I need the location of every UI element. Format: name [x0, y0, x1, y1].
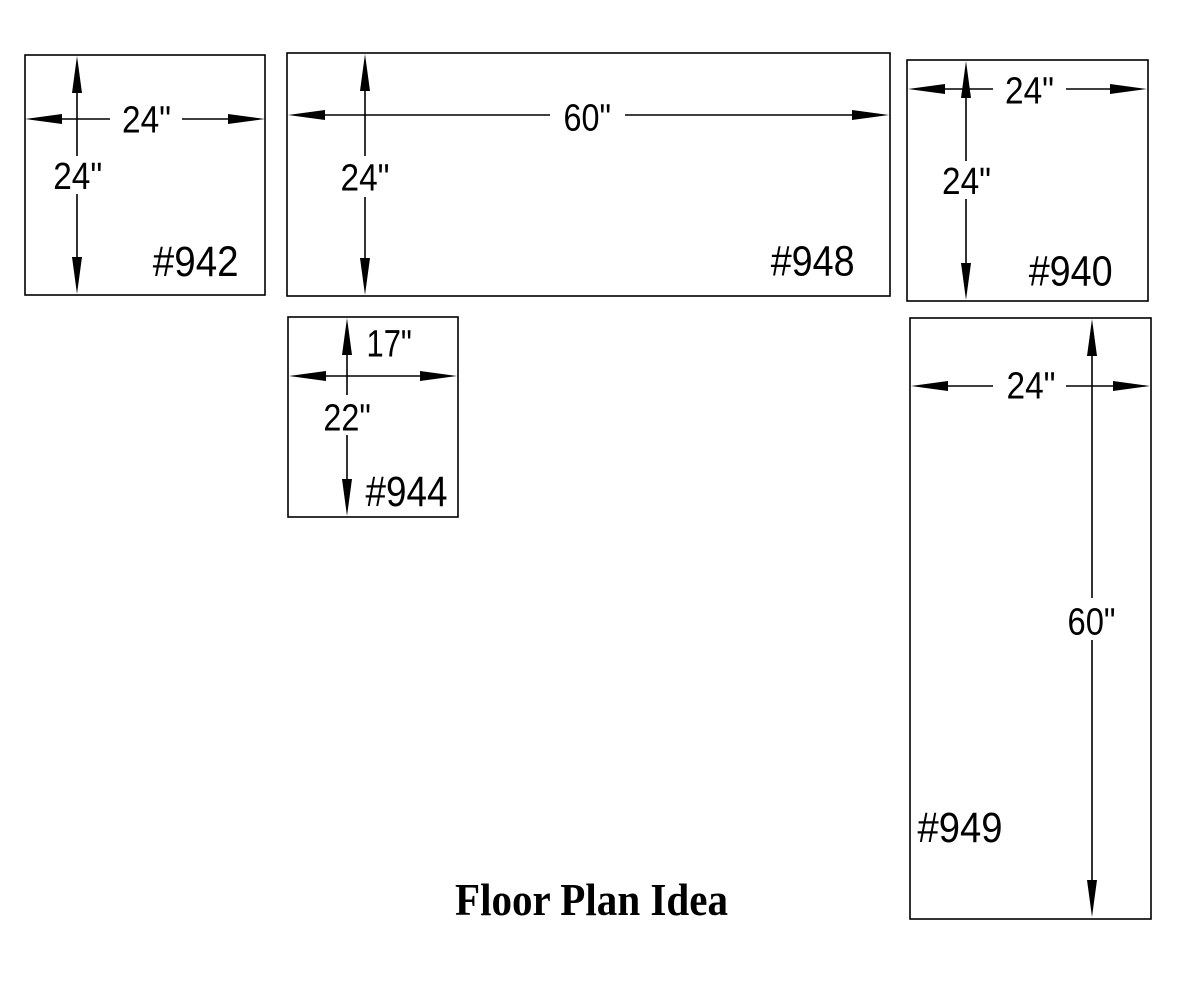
svg-text:24": 24" — [942, 161, 991, 203]
svg-text:24": 24" — [1007, 366, 1056, 408]
svg-text:60": 60" — [1068, 602, 1116, 644]
svg-text:24": 24" — [53, 156, 102, 198]
svg-text:60": 60" — [564, 98, 612, 140]
svg-text:#940: #940 — [1029, 247, 1113, 295]
svg-text:17": 17" — [367, 324, 412, 366]
svg-text:Floor Plan Idea: Floor Plan Idea — [455, 874, 728, 925]
svg-text:24": 24" — [1005, 71, 1054, 113]
svg-text:22": 22" — [323, 397, 370, 439]
svg-text:#942: #942 — [153, 238, 239, 286]
svg-text:24": 24" — [122, 100, 171, 142]
svg-text:24": 24" — [341, 158, 390, 200]
svg-text:#949: #949 — [918, 804, 1003, 852]
svg-text:#944: #944 — [366, 468, 448, 516]
svg-text:#948: #948 — [771, 237, 855, 285]
